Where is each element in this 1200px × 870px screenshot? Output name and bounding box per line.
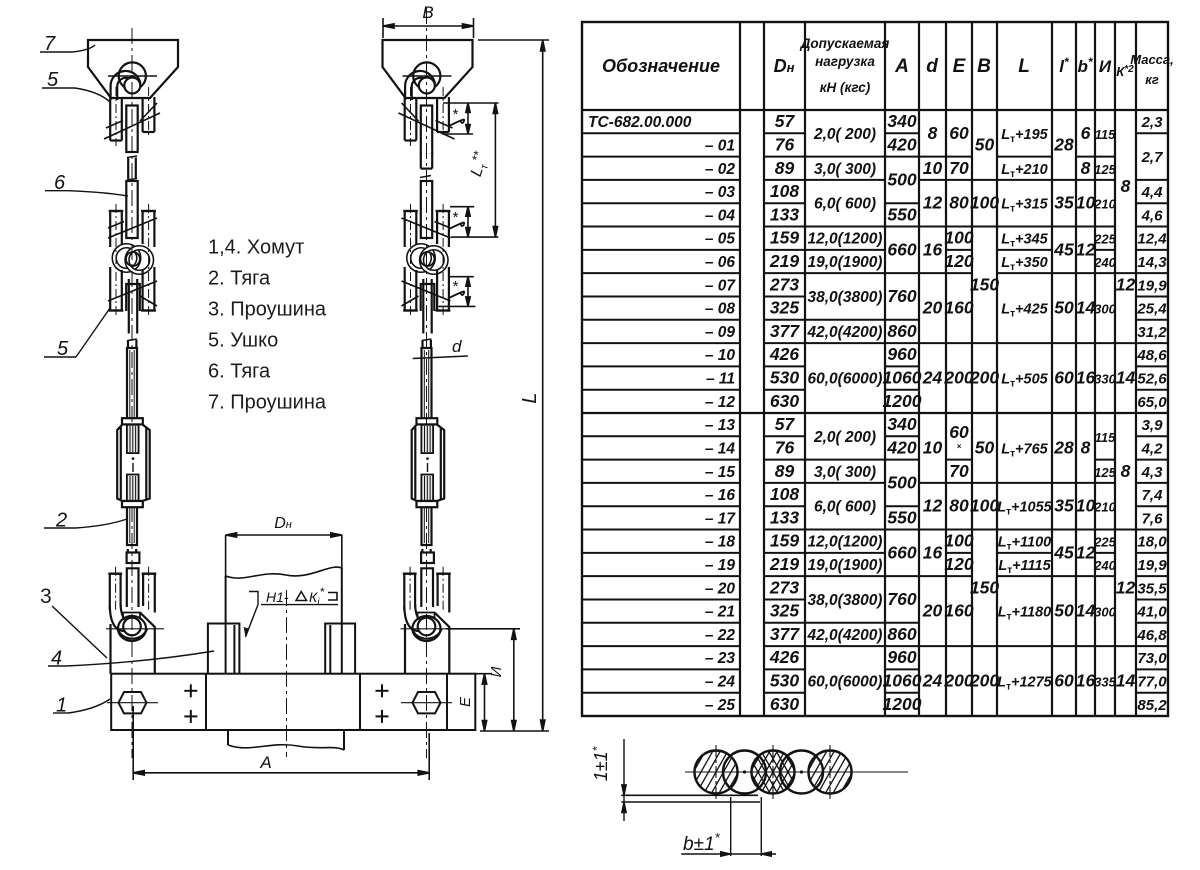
svg-text:225: 225 [1093,232,1116,247]
svg-text:42,0(4200): 42,0(4200) [807,627,883,644]
svg-text:660: 660 [887,542,916,562]
svg-text:– 13: – 13 [705,417,736,434]
svg-text:100: 100 [970,496,999,516]
svg-text:кН (кгс): кН (кгс) [820,80,871,95]
svg-text:4,6: 4,6 [1141,207,1164,224]
svg-text:Lт+1180: Lт+1180 [998,605,1051,623]
svg-text:– 03: – 03 [705,184,736,201]
svg-text:19,9: 19,9 [1137,277,1167,294]
svg-text:3,9: 3,9 [1142,417,1164,434]
svg-text:273: 273 [769,577,799,597]
svg-text:1060: 1060 [883,368,922,388]
svg-text:50: 50 [1054,298,1074,318]
svg-text:3,0( 300): 3,0( 300) [814,161,876,178]
svg-text:Е: Е [953,56,967,77]
svg-text:76: 76 [775,134,795,154]
svg-text:Н1-: Н1- [266,589,289,605]
svg-text:L: L [519,392,541,403]
svg-text:133: 133 [770,204,799,224]
svg-text:14: 14 [1076,298,1096,318]
svg-text:300: 300 [1094,605,1116,620]
svg-text:14: 14 [1116,671,1136,691]
svg-text:7. Проушина: 7. Проушина [208,392,327,414]
svg-text:Lт+1055: Lт+1055 [997,500,1052,518]
svg-text:12,4: 12,4 [1137,231,1167,248]
svg-text:19,9: 19,9 [1137,557,1167,574]
svg-text:12,0(1200): 12,0(1200) [808,534,883,551]
svg-text:160: 160 [944,601,973,621]
svg-text:41,0: 41,0 [1136,604,1167,621]
svg-text:6. Тяга: 6. Тяга [208,361,271,383]
svg-text:240: 240 [1093,255,1116,270]
svg-text:89: 89 [775,158,795,178]
svg-text:19,0(1900): 19,0(1900) [808,254,883,271]
svg-text:80: 80 [949,496,969,516]
svg-text:Допускаемая: Допускаемая [800,36,890,51]
svg-text:60: 60 [949,422,969,442]
svg-text:50: 50 [975,134,995,154]
svg-text:65,0: 65,0 [1137,394,1167,411]
svg-text:2,7: 2,7 [1141,149,1164,166]
svg-text:530: 530 [770,671,799,691]
svg-text:d: d [452,337,462,356]
svg-text:1060: 1060 [883,671,922,691]
svg-text:1,4. Хомут: 1,4. Хомут [208,237,304,259]
svg-text:В: В [422,3,433,22]
svg-text:159: 159 [770,228,799,248]
svg-text:273: 273 [769,274,799,294]
svg-text:500: 500 [887,169,916,189]
svg-text:19,0(1900): 19,0(1900) [808,557,883,574]
svg-text:– 14: – 14 [705,440,736,457]
svg-text:115: 115 [1095,127,1116,142]
svg-text:l*: l* [1059,55,1070,76]
svg-text:3,0( 300): 3,0( 300) [814,464,876,481]
svg-text:48,6: 48,6 [1136,347,1167,364]
svg-text:1±1*: 1±1* [590,746,611,781]
svg-text:3: 3 [40,585,52,608]
svg-text:8: 8 [1121,176,1131,196]
svg-text:340: 340 [887,414,916,434]
svg-text:35,5: 35,5 [1137,580,1167,597]
svg-text:12,0(1200): 12,0(1200) [808,231,883,248]
svg-text:10: 10 [923,158,943,178]
svg-text:76: 76 [775,437,795,457]
svg-text:240: 240 [1093,558,1116,573]
svg-text:340: 340 [887,111,916,131]
svg-text:6,0( 600): 6,0( 600) [814,196,876,213]
svg-text:57: 57 [775,414,796,434]
svg-text:Lт+195: Lт+195 [1001,127,1048,145]
svg-text:Lт+1275: Lт+1275 [997,675,1052,693]
svg-text:219: 219 [769,554,799,574]
svg-text:77,0: 77,0 [1137,674,1167,691]
svg-text:– 17: – 17 [705,510,737,527]
svg-text:8: 8 [928,123,938,143]
svg-text:2,0( 200): 2,0( 200) [813,126,876,143]
svg-text:530: 530 [770,368,799,388]
svg-text:60: 60 [1054,368,1074,388]
svg-text:– 20: – 20 [705,580,736,597]
svg-text:Lт+350: Lт+350 [1001,255,1047,273]
svg-text:А: А [259,753,271,772]
svg-text:12: 12 [1116,274,1136,294]
svg-text:И: И [488,666,505,677]
svg-text:325: 325 [770,298,799,318]
svg-text:– 06: – 06 [705,254,736,271]
svg-text:12: 12 [923,193,943,213]
svg-text:Lт+505: Lт+505 [1001,372,1048,390]
svg-text:38,0(3800): 38,0(3800) [808,289,883,306]
svg-text:70: 70 [949,461,969,481]
svg-text:12: 12 [1116,577,1136,597]
svg-text:14,3: 14,3 [1137,254,1167,271]
svg-text:12: 12 [1076,239,1096,259]
svg-text:7,6: 7,6 [1142,510,1164,527]
svg-text:70: 70 [949,158,969,178]
svg-text:Обозначение: Обозначение [602,56,720,76]
svg-text:8: 8 [1081,437,1091,457]
svg-text:А: А [894,56,909,77]
svg-text:7,4: 7,4 [1142,487,1164,504]
svg-text:120: 120 [944,554,973,574]
svg-text:200: 200 [969,671,999,691]
svg-text:377: 377 [770,624,800,644]
svg-text:210: 210 [1093,500,1116,515]
svg-text:225: 225 [1093,535,1116,550]
svg-text:В: В [977,56,991,77]
svg-text:12: 12 [1076,542,1096,562]
svg-text:Lт+765: Lт+765 [1001,441,1048,459]
svg-text:860: 860 [887,624,916,644]
svg-text:Lт+425: Lт+425 [1001,302,1048,320]
svg-text:Масса,: Масса, [1130,52,1174,67]
svg-text:– 07: – 07 [705,277,737,294]
svg-text:– 08: – 08 [705,301,736,318]
svg-text:500: 500 [887,472,916,492]
svg-text:– 05: – 05 [705,231,736,248]
svg-text:50: 50 [1054,601,1074,621]
svg-text:1200: 1200 [883,694,922,714]
svg-text:6,0( 600): 6,0( 600) [814,499,876,516]
svg-text:100: 100 [944,228,973,248]
svg-text:42,0(4200): 42,0(4200) [807,324,883,341]
svg-text:159: 159 [770,531,799,551]
svg-text:12: 12 [923,496,943,516]
svg-text:– 10: – 10 [705,347,736,364]
svg-text:– 16: – 16 [705,487,736,504]
svg-text:150: 150 [970,577,999,597]
svg-text:330: 330 [1094,372,1116,387]
svg-text:14: 14 [1116,368,1136,388]
svg-text:28: 28 [1053,437,1074,457]
svg-text:20: 20 [922,298,943,318]
svg-text:b*: b* [1077,55,1093,76]
svg-text:45: 45 [1053,239,1074,259]
svg-text:550: 550 [887,204,916,224]
svg-text:150: 150 [970,274,999,294]
svg-text:*: * [452,106,459,123]
svg-text:120: 120 [944,251,973,271]
svg-text:Dн: Dн [774,56,795,76]
svg-text:Lт+345: Lт+345 [1001,232,1048,250]
svg-text:Lт+210: Lт+210 [1001,162,1047,180]
svg-text:Lт+1115: Lт+1115 [998,558,1051,576]
svg-text:16: 16 [923,542,943,562]
svg-text:– 02: – 02 [705,161,736,178]
svg-text:16: 16 [923,239,943,259]
svg-text:14: 14 [1076,601,1096,621]
svg-text:115: 115 [1095,430,1116,445]
svg-text:4,4: 4,4 [1141,184,1164,201]
svg-text:10: 10 [1076,496,1096,516]
svg-text:52,6: 52,6 [1137,371,1167,388]
svg-text:Е: Е [457,696,474,707]
svg-text:И: И [1099,57,1112,76]
svg-text:– 25: – 25 [705,697,736,714]
svg-text:2,3: 2,3 [1141,114,1164,131]
svg-text:– 21: – 21 [705,604,735,621]
svg-text:нагрузка: нагрузка [815,54,875,69]
svg-text:100: 100 [944,531,973,551]
svg-text:d: d [926,56,938,77]
svg-text:60: 60 [949,123,969,143]
svg-text:5. Ушко: 5. Ушко [208,330,278,352]
svg-text:20: 20 [922,601,943,621]
svg-text:160: 160 [944,298,973,318]
svg-text:108: 108 [770,484,799,504]
svg-text:– 23: – 23 [705,650,736,667]
svg-text:– 09: – 09 [705,324,736,341]
svg-text:35: 35 [1054,496,1074,516]
svg-text:2,0( 200): 2,0( 200) [813,429,876,446]
svg-text:– 15: – 15 [705,464,736,481]
svg-text:46,8: 46,8 [1136,627,1167,644]
svg-text:*: * [452,278,459,295]
svg-text:760: 760 [887,286,916,306]
svg-text:57: 57 [775,111,796,131]
svg-text:– 22: – 22 [705,627,736,644]
svg-text:630: 630 [770,694,799,714]
svg-text:760: 760 [887,589,916,609]
svg-text:420: 420 [886,437,916,457]
svg-text:16: 16 [1076,671,1096,691]
svg-text:4,2: 4,2 [1141,440,1164,457]
svg-text:4,3: 4,3 [1141,464,1164,481]
svg-text:– 18: – 18 [705,534,736,551]
svg-text:420: 420 [886,134,916,154]
svg-text:8: 8 [1081,158,1091,178]
svg-text:Lт**: Lт** [464,148,495,179]
svg-text:– 24: – 24 [705,674,736,691]
svg-text:60,0(6000): 60,0(6000) [808,371,883,388]
svg-text:50: 50 [975,437,995,457]
svg-text:1200: 1200 [883,391,922,411]
svg-text:108: 108 [770,181,799,201]
svg-text:125: 125 [1094,162,1116,177]
svg-text:3. Проушина: 3. Проушина [208,299,327,321]
svg-text:– 11: – 11 [706,371,735,388]
svg-text:10: 10 [1076,193,1096,213]
svg-text:133: 133 [770,507,799,527]
svg-text:*: * [452,209,459,226]
svg-text:426: 426 [769,647,799,667]
svg-text:b±1*: b±1* [683,830,721,855]
svg-text:60: 60 [1054,671,1074,691]
svg-text:325: 325 [770,601,799,621]
svg-text:377: 377 [770,321,800,341]
svg-text:89: 89 [775,461,795,481]
svg-text:8: 8 [1121,461,1131,481]
svg-text:– 12: – 12 [705,394,736,411]
svg-text:860: 860 [887,321,916,341]
svg-text:24: 24 [922,671,943,691]
svg-text:60,0(6000): 60,0(6000) [808,674,883,691]
svg-text:219: 219 [769,251,799,271]
svg-text:80: 80 [949,193,969,213]
svg-text:L: L [1018,56,1030,77]
svg-text:35: 35 [1054,193,1074,213]
svg-text:73,0: 73,0 [1137,650,1167,667]
svg-text:Lт+1100: Lт+1100 [998,535,1051,553]
svg-text:– 01: – 01 [705,137,735,154]
svg-text:85,2: 85,2 [1137,697,1167,714]
svg-text:– 19: – 19 [705,557,736,574]
svg-text:25,4: 25,4 [1136,301,1167,318]
svg-text:×: × [957,442,962,451]
svg-text:10: 10 [923,437,943,457]
svg-text:100: 100 [970,193,999,213]
svg-text:38,0(3800): 38,0(3800) [808,592,883,609]
svg-text:550: 550 [887,507,916,527]
svg-text:125: 125 [1094,465,1116,480]
svg-text:18,0: 18,0 [1137,534,1167,551]
svg-text:660: 660 [887,239,916,259]
svg-text:31,2: 31,2 [1137,324,1167,341]
svg-text:960: 960 [887,647,916,667]
svg-text:28: 28 [1053,134,1074,154]
svg-text:16: 16 [1076,368,1096,388]
svg-text:Lт+315: Lт+315 [1001,197,1048,215]
svg-text:24: 24 [922,368,943,388]
svg-text:426: 426 [769,344,799,364]
svg-text:300: 300 [1094,302,1116,317]
svg-text:45: 45 [1053,542,1074,562]
svg-text:960: 960 [887,344,916,364]
svg-text:– 04: – 04 [705,207,736,224]
svg-text:630: 630 [770,391,799,411]
svg-text:335: 335 [1094,675,1116,690]
svg-text:210: 210 [1093,197,1116,212]
svg-text:200: 200 [969,368,999,388]
svg-text:Dн: Dн [274,515,292,532]
svg-text:2. Тяга: 2. Тяга [208,268,271,290]
svg-text:ТС-682.00.000: ТС-682.00.000 [588,114,692,131]
svg-text:6: 6 [1081,123,1091,143]
svg-text:кг: кг [1145,72,1159,87]
